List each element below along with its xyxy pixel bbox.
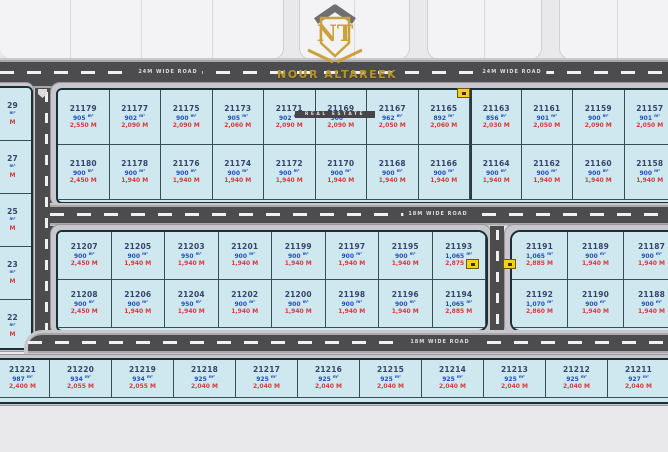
plot-cell-21206[interactable]: 21206900 m²1,940 M: [112, 280, 166, 328]
plot-cell-21205[interactable]: 21205900 m²1,940 M: [112, 232, 166, 280]
plot-area: 900 m²: [176, 169, 197, 177]
plot-number: 21177: [121, 105, 148, 113]
plot-price: 2,040 M: [563, 384, 590, 390]
plot-price: M: [10, 226, 16, 232]
plot-number: 21160: [585, 160, 612, 168]
plot-area: 900 m²: [585, 252, 606, 260]
plot-area: m²: [10, 323, 16, 331]
plot-price: 2,450 M: [71, 261, 98, 267]
plot-cell-21193[interactable]: 211931,065 m²2,875 M: [433, 232, 487, 280]
plot-area: 925 m²: [380, 375, 401, 383]
plot-price: 2,055 M: [129, 384, 156, 390]
plot-price: 2,055 M: [67, 384, 94, 390]
plot-area: 900 m²: [433, 169, 454, 177]
plot-area: 900 m²: [234, 252, 255, 260]
plot-number: 21180: [70, 160, 97, 168]
plot-price: 1,940 M: [231, 261, 258, 267]
plot-number: 21215: [377, 366, 404, 374]
plot-cell-21216[interactable]: 21216925 m²2,040 M: [298, 360, 360, 398]
plot-area: 1,065 m²: [445, 300, 472, 308]
plot-number: 27: [7, 155, 18, 163]
plot-cell-21170[interactable]: 21170900 m²1,940 M: [316, 145, 368, 200]
plot-price: 2,550 M: [70, 123, 97, 129]
plot-number: 23: [7, 261, 18, 269]
plot-number: 21163: [483, 105, 510, 113]
plot-map-canvas: 24M WIDE ROAD 24M WIDE ROAD 29m²M27m²M25…: [0, 0, 668, 452]
road-18m-bottom-label: 18M WIDE ROAD: [405, 339, 474, 346]
plot-area: 900 m²: [73, 169, 94, 177]
plot-area: 905 m²: [73, 114, 94, 122]
bottom-block: 21221987 m²2,400 M21220934 m²2,055 M2121…: [0, 358, 668, 404]
plot-number: 21195: [392, 243, 419, 251]
plot-price: 1,940 M: [178, 309, 205, 315]
plot-price: 1,940 M: [338, 261, 365, 267]
plot-area: 925 m²: [566, 375, 587, 383]
plot-area: 900 m²: [341, 252, 362, 260]
road-vertical-middle: [490, 226, 504, 332]
plot-number: 21200: [285, 291, 312, 299]
plot-number: 21205: [124, 243, 151, 251]
plot-area: 987 m²: [12, 375, 33, 383]
plot-area: 900 m²: [585, 300, 606, 308]
plot-price: 2,040 M: [501, 384, 528, 390]
plot-cell-21219[interactable]: 21219934 m²2,055 M: [112, 360, 174, 398]
plot-number: 21174: [224, 160, 251, 168]
plot-number: 21190: [582, 291, 609, 299]
plot-cell-21178[interactable]: 21178900 m²1,940 M: [110, 145, 162, 200]
plot-price: 1,940 M: [231, 309, 258, 315]
plot-price: 2,060 M: [224, 123, 251, 129]
plot-price: 2,050 M: [379, 123, 406, 129]
plot-cell-21189[interactable]: 21189900 m²1,940 M: [568, 232, 624, 280]
top-plot-block-3: [427, 0, 542, 60]
plot-area: 927 m²: [628, 375, 649, 383]
plot-number: 21199: [285, 243, 312, 251]
plot-area: 900 m²: [279, 169, 300, 177]
plot-price: 1,940 M: [638, 261, 665, 267]
plot-cell-21208[interactable]: 21208900 m²2,450 M: [58, 280, 112, 328]
plot-price: 1,940 M: [430, 178, 457, 184]
plot-area: 900 m²: [74, 300, 95, 308]
plot-number: 29: [7, 102, 18, 110]
plot-area: 900 m²: [382, 169, 403, 177]
plot-number: 21164: [483, 160, 510, 168]
plot-cell-21202[interactable]: 21202900 m²1,940 M: [219, 280, 273, 328]
plot-cell-21201[interactable]: 21201900 m²1,940 M: [219, 232, 273, 280]
plot-price: 1,940 M: [285, 309, 312, 315]
plot-number: 21198: [338, 291, 365, 299]
plot-number: 21204: [178, 291, 205, 299]
brand-shield-icon: NT: [306, 4, 364, 66]
plot-price: 1,940 M: [124, 309, 151, 315]
brand-tagline: REAL ESTATE: [295, 111, 375, 118]
plot-cell-21176[interactable]: 21176900 m²1,940 M: [161, 145, 213, 200]
utility-marker-icon: [466, 259, 479, 269]
road-18m-middle-label: 18M WIDE ROAD: [403, 211, 472, 218]
plot-number: 21168: [379, 160, 406, 168]
plot-number: 21157: [636, 105, 663, 113]
plot-area: 900 m²: [288, 300, 309, 308]
plot-price: 2,050 M: [533, 123, 560, 129]
plot-area: m²: [10, 217, 16, 225]
plot-cell-21188[interactable]: 21188900 m²1,940 M: [624, 280, 668, 328]
plot-area: 900 m²: [288, 252, 309, 260]
plot-cell-21160[interactable]: 21160900 m²1,940 M: [573, 145, 625, 200]
plot-price: 2,040 M: [625, 384, 652, 390]
plot-price: 1,940 M: [533, 178, 560, 184]
plot-area: 892 m²: [433, 114, 454, 122]
plot-cell-21212[interactable]: 21212925 m²2,040 M: [546, 360, 608, 398]
plot-cell-21159[interactable]: 21159900 m²2,090 M: [573, 90, 625, 145]
top-plot-cell: [213, 0, 283, 59]
plot-area: 900 m²: [176, 114, 197, 122]
top-plot-cell: [0, 0, 71, 59]
plot-cell-21174[interactable]: 21174900 m²1,940 M: [213, 145, 265, 200]
left-partial-block: 29m²M27m²M25m²M23m²M22m²M: [0, 86, 33, 350]
plot-number: 21158: [636, 160, 663, 168]
plot-number: 21166: [430, 160, 457, 168]
plot-price: 1,940 M: [338, 309, 365, 315]
plot-number: 21192: [526, 291, 553, 299]
plot-number: 21162: [533, 160, 560, 168]
plot-cell-21177[interactable]: 21177902 m²2,090 M: [110, 90, 162, 145]
plot-cell-21194[interactable]: 211941,065 m²2,885 M: [433, 280, 487, 328]
plot-area: 900 m²: [234, 300, 255, 308]
plot-cell-21218[interactable]: 21218925 m²2,040 M: [174, 360, 236, 398]
plot-number: 21194: [445, 291, 472, 299]
plot-area: 900 m²: [74, 252, 95, 260]
plot-cell-21215[interactable]: 21215925 m²2,040 M: [360, 360, 422, 398]
plot-cell-21166[interactable]: 21166900 m²1,940 M: [419, 145, 471, 200]
plot-number: 21212: [563, 366, 590, 374]
plot-cell-21198[interactable]: 21198900 m²1,940 M: [326, 280, 380, 328]
plot-cell-21172[interactable]: 21172900 m²1,940 M: [264, 145, 316, 200]
plot-area: 900 m²: [641, 252, 662, 260]
plot-price: 1,940 M: [392, 309, 419, 315]
plot-area: 1,065 m²: [526, 252, 553, 260]
plot-number: 21191: [526, 243, 553, 251]
plot-area: 925 m²: [442, 375, 463, 383]
plot-number: 21187: [638, 243, 665, 251]
brand-watermark: NT NOUR ALTAREEK REAL ESTATE: [277, 4, 393, 119]
plot-cell-25[interactable]: 25m²M: [0, 194, 31, 247]
plot-number: 21220: [67, 366, 94, 374]
plot-cell-21163[interactable]: 21163856 m²2,030 M: [470, 90, 522, 145]
utility-marker-icon: [457, 88, 470, 98]
plot-area: 902 m²: [124, 114, 145, 122]
plot-price: 1,940 M: [379, 178, 406, 184]
plot-number: 21176: [173, 160, 200, 168]
plot-number: 21221: [9, 366, 36, 374]
plot-price: M: [10, 173, 16, 179]
plot-cell-21165[interactable]: 21165892 m²2,060 M: [419, 90, 471, 145]
plot-cell-21213[interactable]: 21213925 m²2,040 M: [484, 360, 546, 398]
utility-marker-icon: [503, 259, 516, 269]
plot-area: 925 m²: [256, 375, 277, 383]
road-24m-label-left: 24M WIDE ROAD: [133, 69, 202, 76]
plot-price: 1,940 M: [636, 178, 663, 184]
plot-area: 900 m²: [127, 252, 148, 260]
plot-cell-21221[interactable]: 21221987 m²2,400 M: [0, 360, 50, 398]
plot-price: 2,090 M: [121, 123, 148, 129]
plot-price: M: [10, 332, 16, 338]
top-plot-cell: [428, 0, 485, 59]
plot-cell-21220[interactable]: 21220934 m²2,055 M: [50, 360, 112, 398]
plot-number: 21206: [124, 291, 151, 299]
plot-area: 856 m²: [486, 114, 507, 122]
plot-number: 21193: [445, 243, 472, 251]
plot-area: 900 m²: [639, 169, 660, 177]
brand-name: NOUR ALTAREEK: [277, 68, 393, 81]
svg-text:NT: NT: [317, 21, 354, 47]
plot-price: 1,940 M: [121, 178, 148, 184]
plot-number: 21175: [173, 105, 200, 113]
plot-price: 2,060 M: [430, 123, 457, 129]
plot-cell-21179[interactable]: 21179905 m²2,550 M: [58, 90, 110, 145]
plot-cell-21164[interactable]: 21164900 m²1,940 M: [470, 145, 522, 200]
plot-cell-23[interactable]: 23m²M: [0, 247, 31, 300]
plot-price: 1,940 M: [224, 178, 251, 184]
plot-area: 900 m²: [486, 169, 507, 177]
plot-cell-21191[interactable]: 211911,065 m²2,885 M: [512, 232, 568, 280]
plot-price: 2,400 M: [9, 384, 36, 390]
plot-number: 21216: [315, 366, 342, 374]
plot-number: 21202: [231, 291, 258, 299]
plot-cell-21157[interactable]: 21157901 m²2,050 M: [625, 90, 668, 145]
plot-cell-21195[interactable]: 21195900 m²1,940 M: [379, 232, 433, 280]
plot-number: 22: [7, 314, 18, 322]
plot-number: 21161: [533, 105, 560, 113]
plot-price: M: [10, 279, 16, 285]
plot-price: 1,940 M: [585, 178, 612, 184]
plot-cell-21187[interactable]: 21187900 m²1,940 M: [624, 232, 668, 280]
plot-cell-21161[interactable]: 21161901 m²2,050 M: [522, 90, 574, 145]
plot-price: 1,940 M: [483, 178, 510, 184]
plot-price: 2,090 M: [585, 123, 612, 129]
plot-area: 900 m²: [124, 169, 145, 177]
plot-area: m²: [10, 164, 16, 172]
plot-area: 901 m²: [536, 114, 557, 122]
road-24m-label-right: 24M WIDE ROAD: [477, 69, 546, 76]
plot-price: 2,450 M: [71, 309, 98, 315]
plot-number: 21165: [430, 105, 457, 113]
top-plot-cell: [485, 0, 541, 59]
plot-number: 21208: [71, 291, 98, 299]
plot-cell-21162[interactable]: 21162900 m²1,940 M: [522, 145, 574, 200]
plot-cell-21196[interactable]: 21196900 m²1,940 M: [379, 280, 433, 328]
plot-price: 2,040 M: [191, 384, 218, 390]
plot-price: 2,040 M: [439, 384, 466, 390]
plot-cell-21217[interactable]: 21217925 m²2,040 M: [236, 360, 298, 398]
plot-price: 1,940 M: [124, 261, 151, 267]
plot-area: 925 m²: [194, 375, 215, 383]
plot-cell-21214[interactable]: 21214925 m²2,040 M: [422, 360, 484, 398]
top-plot-block-1: [0, 0, 284, 60]
plot-price: 1,940 M: [582, 261, 609, 267]
top-plot-cell: [618, 0, 668, 59]
plot-number: 21189: [582, 243, 609, 251]
top-plot-cell: [560, 0, 618, 59]
plot-area: 950 m²: [181, 300, 202, 308]
road-18m-bottom: 18M WIDE ROAD: [24, 330, 668, 356]
plot-price: 2,050 M: [636, 123, 663, 129]
plot-area: 925 m²: [318, 375, 339, 383]
plot-number: 21173: [224, 105, 251, 113]
plot-number: 21201: [231, 243, 258, 251]
plot-area: 900 m²: [395, 252, 416, 260]
plot-area: 900 m²: [330, 169, 351, 177]
plot-cell-21192[interactable]: 211921,070 m²2,860 M: [512, 280, 568, 328]
plot-price: 2,885 M: [445, 309, 472, 315]
plot-number: 21196: [392, 291, 419, 299]
plot-area: 1,070 m²: [526, 300, 553, 308]
plot-price: 2,040 M: [253, 384, 280, 390]
plot-price: 2,860 M: [526, 309, 553, 315]
plot-cell-21168[interactable]: 21168900 m²1,940 M: [367, 145, 419, 200]
plot-number: 21179: [70, 105, 97, 113]
plot-price: M: [10, 120, 16, 126]
plot-price: 2,090 M: [276, 123, 303, 129]
plot-price: 1,940 M: [327, 178, 354, 184]
plot-area: 900 m²: [588, 169, 609, 177]
plot-number: 21203: [178, 243, 205, 251]
plot-area: 900 m²: [536, 169, 557, 177]
plot-area: m²: [10, 111, 16, 119]
plot-cell-21200[interactable]: 21200900 m²1,940 M: [272, 280, 326, 328]
plot-number: 21207: [71, 243, 98, 251]
plot-number: 21159: [585, 105, 612, 113]
plot-cell-29[interactable]: 29m²M: [0, 88, 31, 141]
plot-price: 1,940 M: [173, 178, 200, 184]
plot-cell-21211[interactable]: 21211927 m²2,040 M: [608, 360, 668, 398]
plot-price: 1,940 M: [178, 261, 205, 267]
plot-price: 1,940 M: [392, 261, 419, 267]
plot-area: 905 m²: [227, 114, 248, 122]
plot-cell-27[interactable]: 27m²M: [0, 141, 31, 194]
plot-price: 1,940 M: [638, 309, 665, 315]
plot-price: 1,940 M: [582, 309, 609, 315]
plot-number: 25: [7, 208, 18, 216]
top-plot-block-4: [559, 0, 668, 60]
plot-price: 2,450 M: [70, 178, 97, 184]
plot-area: 900 m²: [127, 300, 148, 308]
plot-number: 21211: [625, 366, 652, 374]
plot-number: 21188: [638, 291, 665, 299]
plot-area: 934 m²: [132, 375, 153, 383]
top-plot-cell: [142, 0, 213, 59]
plot-price: 2,040 M: [377, 384, 404, 390]
plot-number: 21170: [327, 160, 354, 168]
plot-area: 925 m²: [504, 375, 525, 383]
plot-area: 900 m²: [227, 169, 248, 177]
plot-area: 900 m²: [341, 300, 362, 308]
plot-number: 21219: [129, 366, 156, 374]
plot-number: 21178: [121, 160, 148, 168]
plot-cell-21173[interactable]: 21173905 m²2,060 M: [213, 90, 265, 145]
plot-number: 21214: [439, 366, 466, 374]
plot-number: 21217: [253, 366, 280, 374]
plot-number: 21218: [191, 366, 218, 374]
road-18m-middle: 18M WIDE ROAD: [50, 203, 668, 226]
plot-cell-21180[interactable]: 21180900 m²2,450 M: [58, 145, 110, 200]
plot-number: 21197: [338, 243, 365, 251]
plot-price: 1,940 M: [285, 261, 312, 267]
plot-price: 2,030 M: [483, 123, 510, 129]
plot-area: 900 m²: [588, 114, 609, 122]
plot-cell-21197[interactable]: 21197900 m²1,940 M: [326, 232, 380, 280]
plot-cell-21204[interactable]: 21204950 m²1,940 M: [165, 280, 219, 328]
plot-price: 2,090 M: [327, 123, 354, 129]
plot-area: 901 m²: [639, 114, 660, 122]
top-plot-cell: [71, 0, 142, 59]
plot-price: 2,040 M: [315, 384, 342, 390]
plot-area: 934 m²: [70, 375, 91, 383]
plot-cell-21158[interactable]: 21158900 m²1,940 M: [625, 145, 668, 200]
plot-cell-21203[interactable]: 21203950 m²1,940 M: [165, 232, 219, 280]
plot-area: 900 m²: [395, 300, 416, 308]
block-c: 211911,065 m²2,885 M21189900 m²1,940 M21…: [510, 230, 668, 332]
plot-price: 2,090 M: [173, 123, 200, 129]
block-b: 21207900 m²2,450 M21205900 m²1,940 M2120…: [56, 230, 488, 332]
plot-cell-21199[interactable]: 21199900 m²1,940 M: [272, 232, 326, 280]
plot-price: 2,885 M: [526, 261, 553, 267]
plot-area: 900 m²: [641, 300, 662, 308]
plot-number: 21213: [501, 366, 528, 374]
plot-number: 21172: [276, 160, 303, 168]
plot-cell-21207[interactable]: 21207900 m²2,450 M: [58, 232, 112, 280]
plot-cell-21175[interactable]: 21175900 m²2,090 M: [161, 90, 213, 145]
plot-area: m²: [10, 270, 16, 278]
plot-cell-21190[interactable]: 21190900 m²1,940 M: [568, 280, 624, 328]
plot-price: 1,940 M: [276, 178, 303, 184]
plot-area: 950 m²: [181, 252, 202, 260]
